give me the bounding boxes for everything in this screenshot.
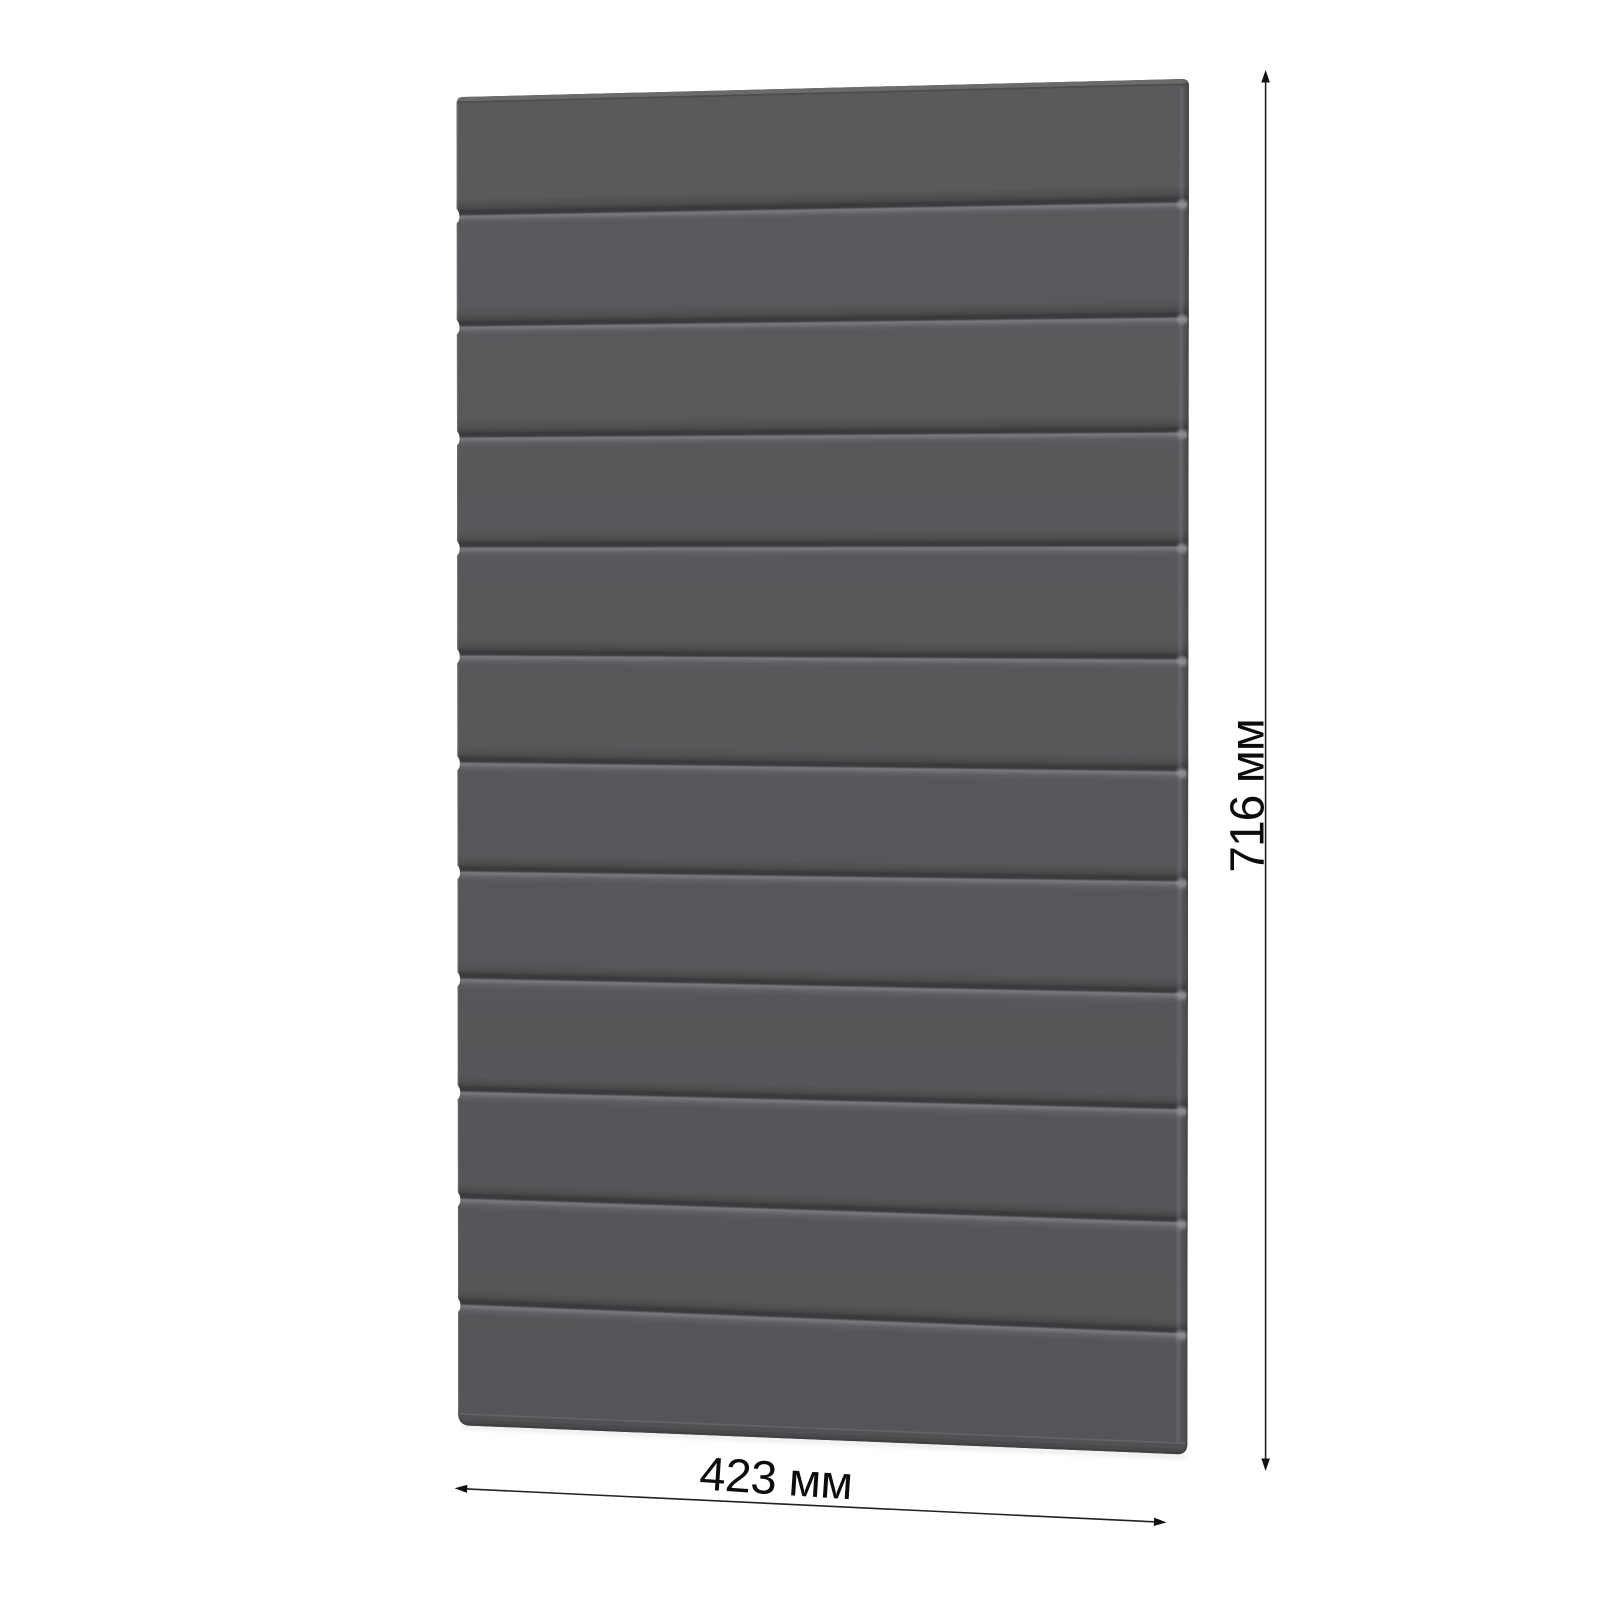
svg-text:423 мм: 423 мм <box>698 1446 854 1509</box>
svg-text:716 мм: 716 мм <box>1222 719 1275 872</box>
